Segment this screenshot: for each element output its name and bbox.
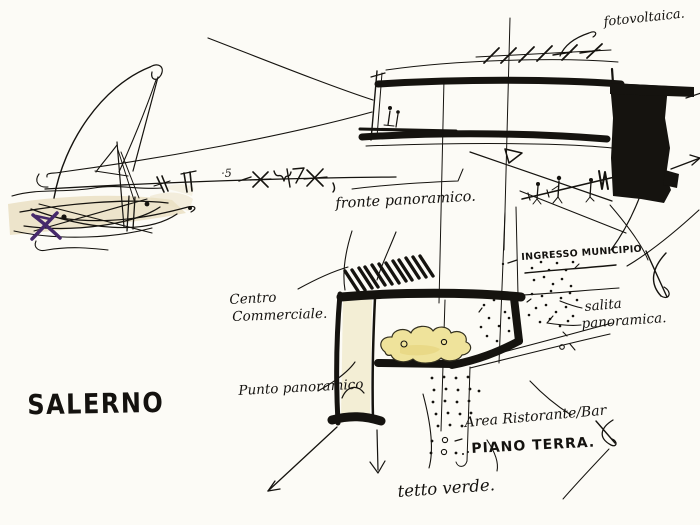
label-centro-line2: Commerciale. [232,306,328,325]
plan-top-wall [341,293,521,297]
sketch-canvas: SALERNO fotovoltaica. fronte panoramico.… [0,0,700,525]
arrow-down [370,430,385,473]
label-salita-line1: salita [584,296,622,315]
label-ground-note: ·5 [221,167,232,180]
label-centro-line1: Centro [229,290,277,308]
arrow-down-left [268,427,337,491]
yellow-cloud-blob [381,326,471,363]
section-cut-marker [505,149,522,163]
plan-left-wall-outer [337,294,340,423]
plan-hatch-band [345,256,433,291]
x8-scrawl [596,420,616,446]
right-x-scrawl [646,251,669,297]
title-salerno: SALERNO [27,387,165,422]
plan-left-wall-cap [332,417,381,421]
black-tower [610,83,694,203]
plan-right-wall [514,298,519,341]
plan-left-wall-inner [373,298,375,419]
plan-middle-wall [378,363,452,364]
plan-left-wall-fill [341,299,372,418]
right-arrow [671,155,700,169]
